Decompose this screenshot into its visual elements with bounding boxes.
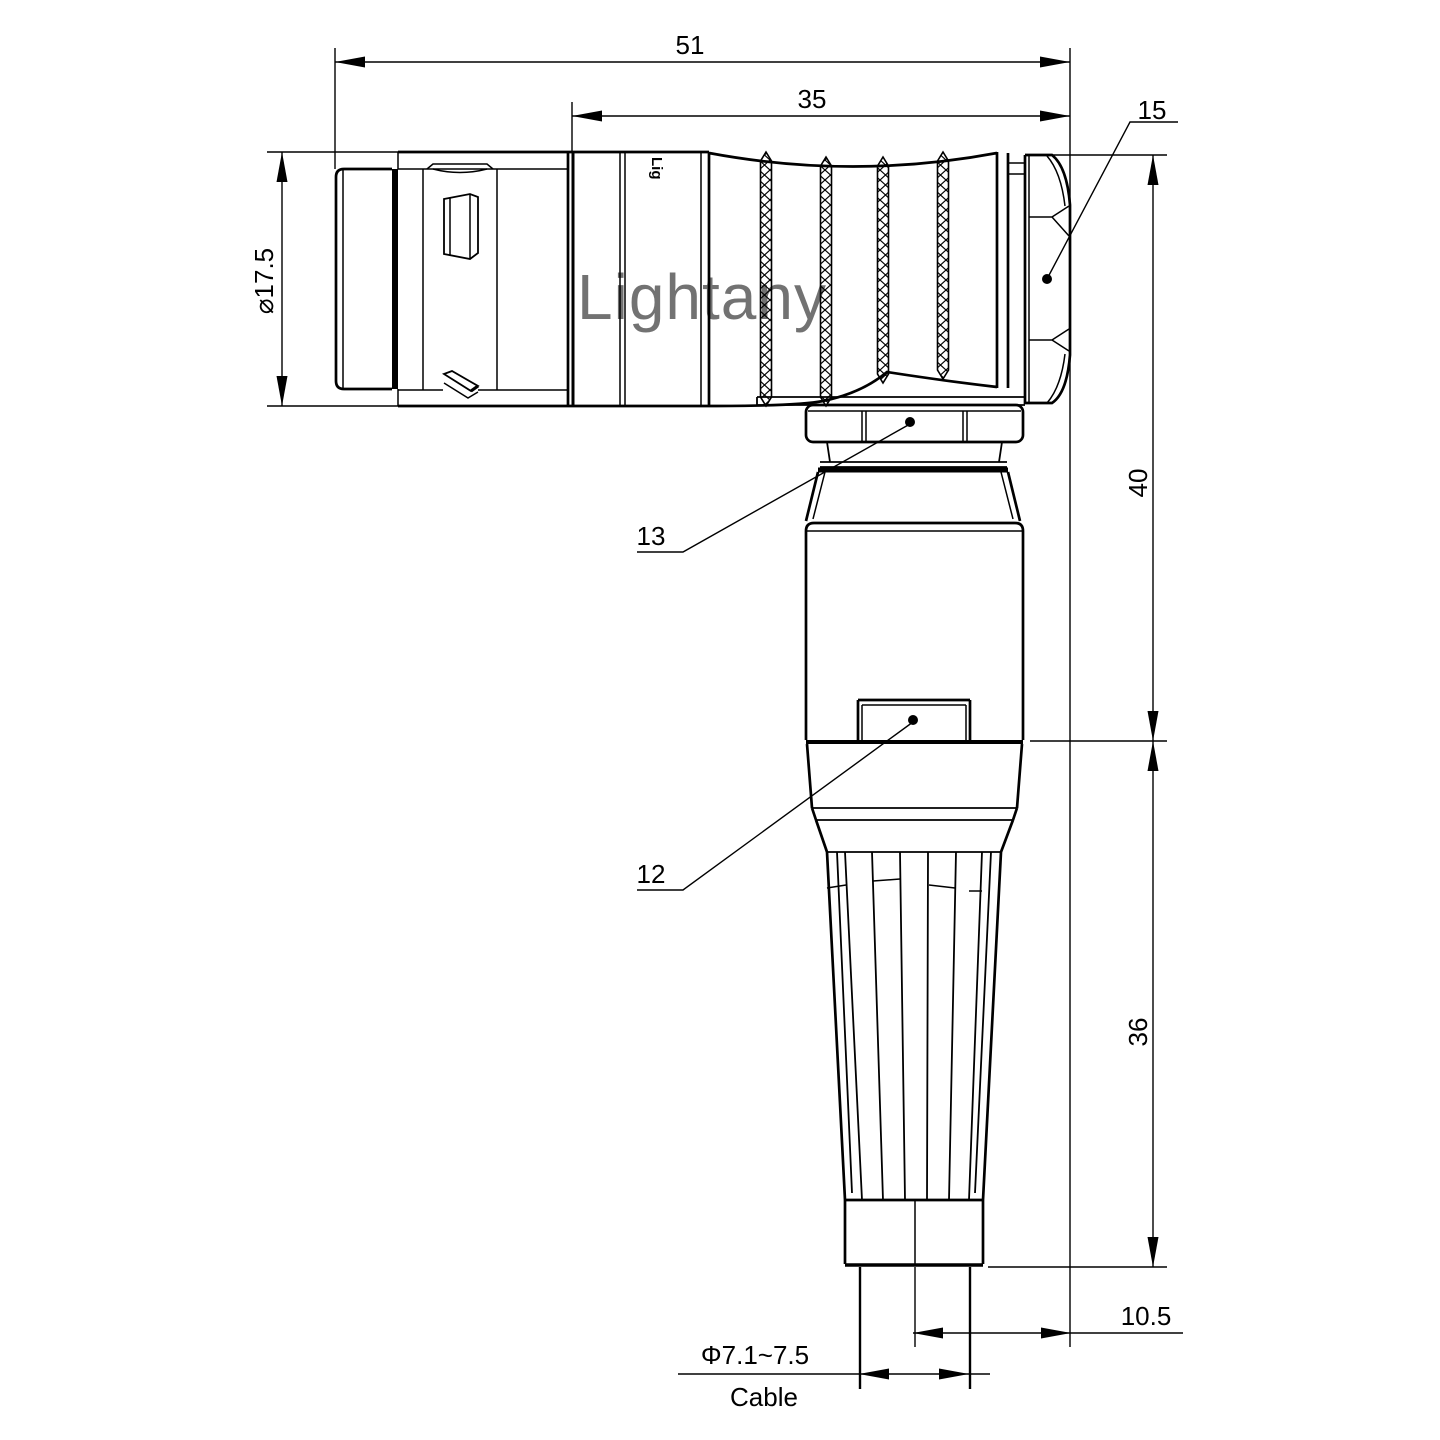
arrow-right-icon xyxy=(1041,1328,1071,1339)
arrow-right-icon xyxy=(1040,111,1070,122)
knurl-band xyxy=(878,157,889,383)
boot-ferrule xyxy=(845,1200,983,1265)
dim-cable-offset: 10.5 xyxy=(913,1301,1183,1339)
dim-grip-length: 35 xyxy=(572,84,1070,122)
knurl-band xyxy=(761,152,772,406)
plug-shell xyxy=(336,152,568,406)
arrow-left-icon xyxy=(913,1328,943,1339)
extension-lines xyxy=(267,48,1167,1347)
leader-dot xyxy=(905,417,915,427)
backshell-body xyxy=(806,523,1023,742)
arrow-left-icon xyxy=(335,57,365,68)
arrow-left-icon xyxy=(859,1369,889,1380)
arrow-up-icon xyxy=(1148,741,1159,771)
shell-seam xyxy=(392,169,398,389)
dim-10-5-text: 10.5 xyxy=(1121,1301,1172,1331)
technical-drawing-page: Lightany Lig xyxy=(0,0,1440,1440)
dimensions: 51 35 ⌀17.5 40 36 xyxy=(249,30,1183,1412)
knurl-band xyxy=(821,157,832,406)
cable-caption-text: Cable xyxy=(730,1382,798,1412)
callout-15-text: 15 xyxy=(1138,95,1167,125)
latch-foot xyxy=(444,371,478,398)
arrow-right-icon xyxy=(1040,57,1070,68)
dim-36-text: 36 xyxy=(1123,1018,1153,1047)
elbow-assembly xyxy=(757,397,1025,742)
dim-elbow-height: 40 36 xyxy=(1123,155,1159,1267)
dim-17-5-text: ⌀17.5 xyxy=(249,248,279,314)
arrow-down-icon xyxy=(1148,1237,1159,1267)
cable-diameter-text: Φ7.1~7.5 xyxy=(701,1340,809,1370)
knurl-band xyxy=(938,152,949,379)
dim-total-length: 51 xyxy=(335,30,1070,68)
connector-drawing: Lightany Lig xyxy=(0,0,1440,1440)
arrow-up-icon xyxy=(1148,155,1159,185)
arrow-down-icon xyxy=(277,376,288,406)
watermark: Lightany xyxy=(577,261,827,333)
arrow-down-icon xyxy=(1148,711,1159,741)
dim-51-text: 51 xyxy=(676,30,705,60)
leader-dot xyxy=(908,715,918,725)
boot-fins xyxy=(827,852,991,1200)
callout-13-text: 13 xyxy=(637,521,666,551)
arrow-left-icon xyxy=(572,111,602,122)
brand-stamp: Lig xyxy=(648,157,665,180)
dim-cable-diameter: Φ7.1~7.5 Cable xyxy=(678,1340,990,1412)
callout-12-text: 12 xyxy=(637,859,666,889)
dim-35-text: 35 xyxy=(798,84,827,114)
latch-window xyxy=(444,194,478,259)
strain-relief-boot xyxy=(807,744,1022,1265)
gland-washers xyxy=(820,442,1007,467)
dim-40-text: 40 xyxy=(1123,469,1153,498)
leader-dot xyxy=(1042,274,1052,284)
arrow-right-icon xyxy=(939,1369,969,1380)
arrow-up-icon xyxy=(277,152,288,182)
watermark-text: Lightany xyxy=(577,261,827,333)
dim-shell-diameter: ⌀17.5 xyxy=(249,152,288,406)
